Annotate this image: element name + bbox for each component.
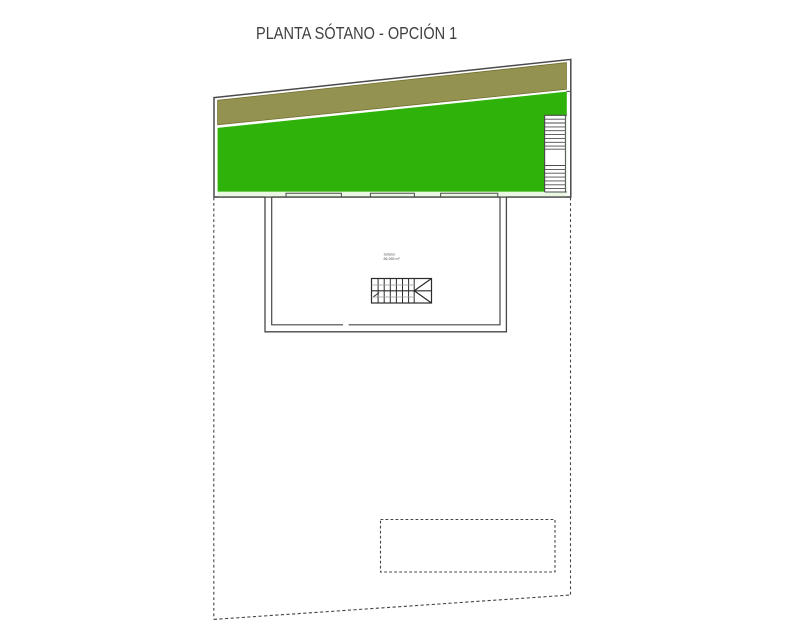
svg-text:Sótano: Sótano (384, 253, 395, 257)
svg-text:86.265 m²: 86.265 m² (384, 257, 401, 261)
